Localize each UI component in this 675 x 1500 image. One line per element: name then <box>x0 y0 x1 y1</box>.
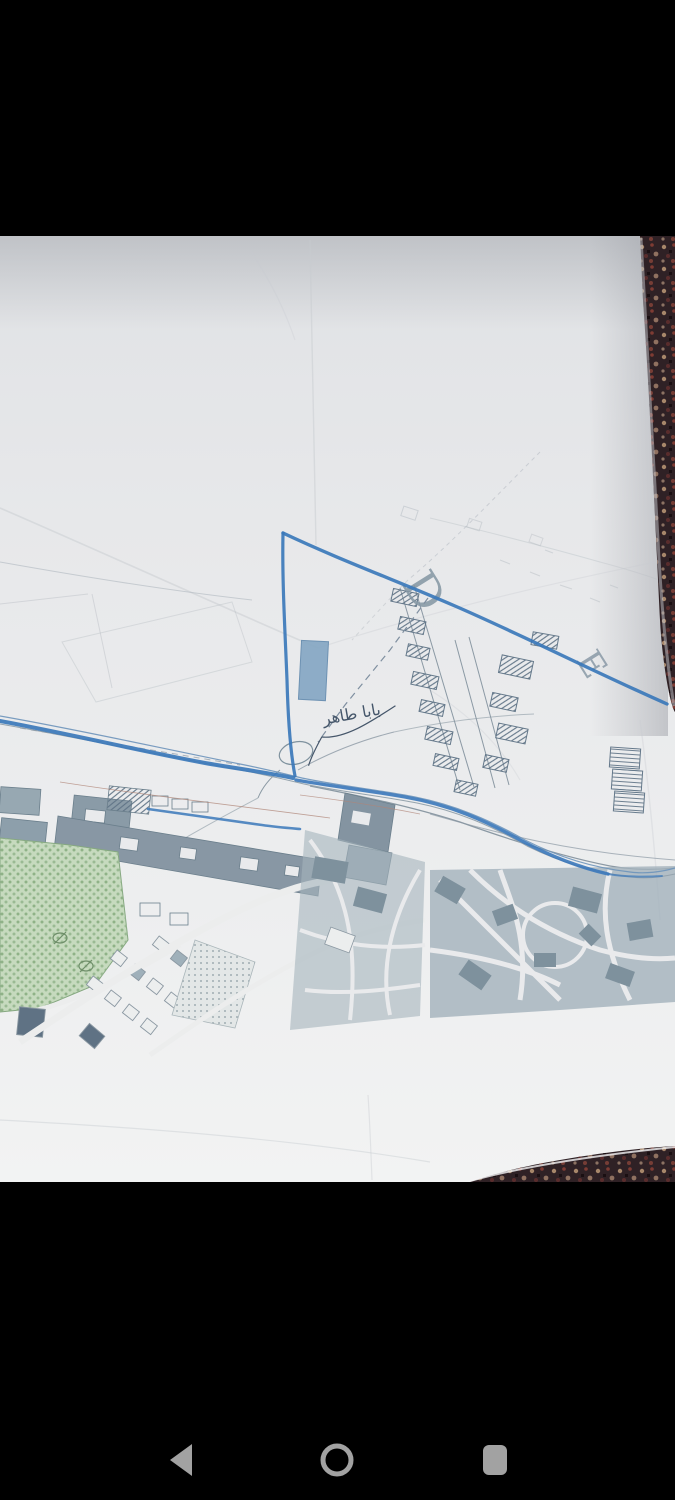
home-button[interactable] <box>313 1438 361 1482</box>
back-triangle-icon <box>166 1442 196 1478</box>
phone-screen: D E بابا طاهر <box>0 0 675 1500</box>
back-button[interactable] <box>157 1438 205 1482</box>
recents-button[interactable] <box>471 1438 519 1482</box>
highlighted-parcel <box>298 640 328 700</box>
home-circle-icon <box>318 1441 356 1479</box>
letterbox-top <box>0 0 675 236</box>
recents-square-icon <box>481 1443 509 1477</box>
paper-top-shadow <box>0 236 675 330</box>
old-town-blocks <box>430 866 675 1018</box>
map-photo[interactable]: D E بابا طاهر <box>0 236 675 1182</box>
